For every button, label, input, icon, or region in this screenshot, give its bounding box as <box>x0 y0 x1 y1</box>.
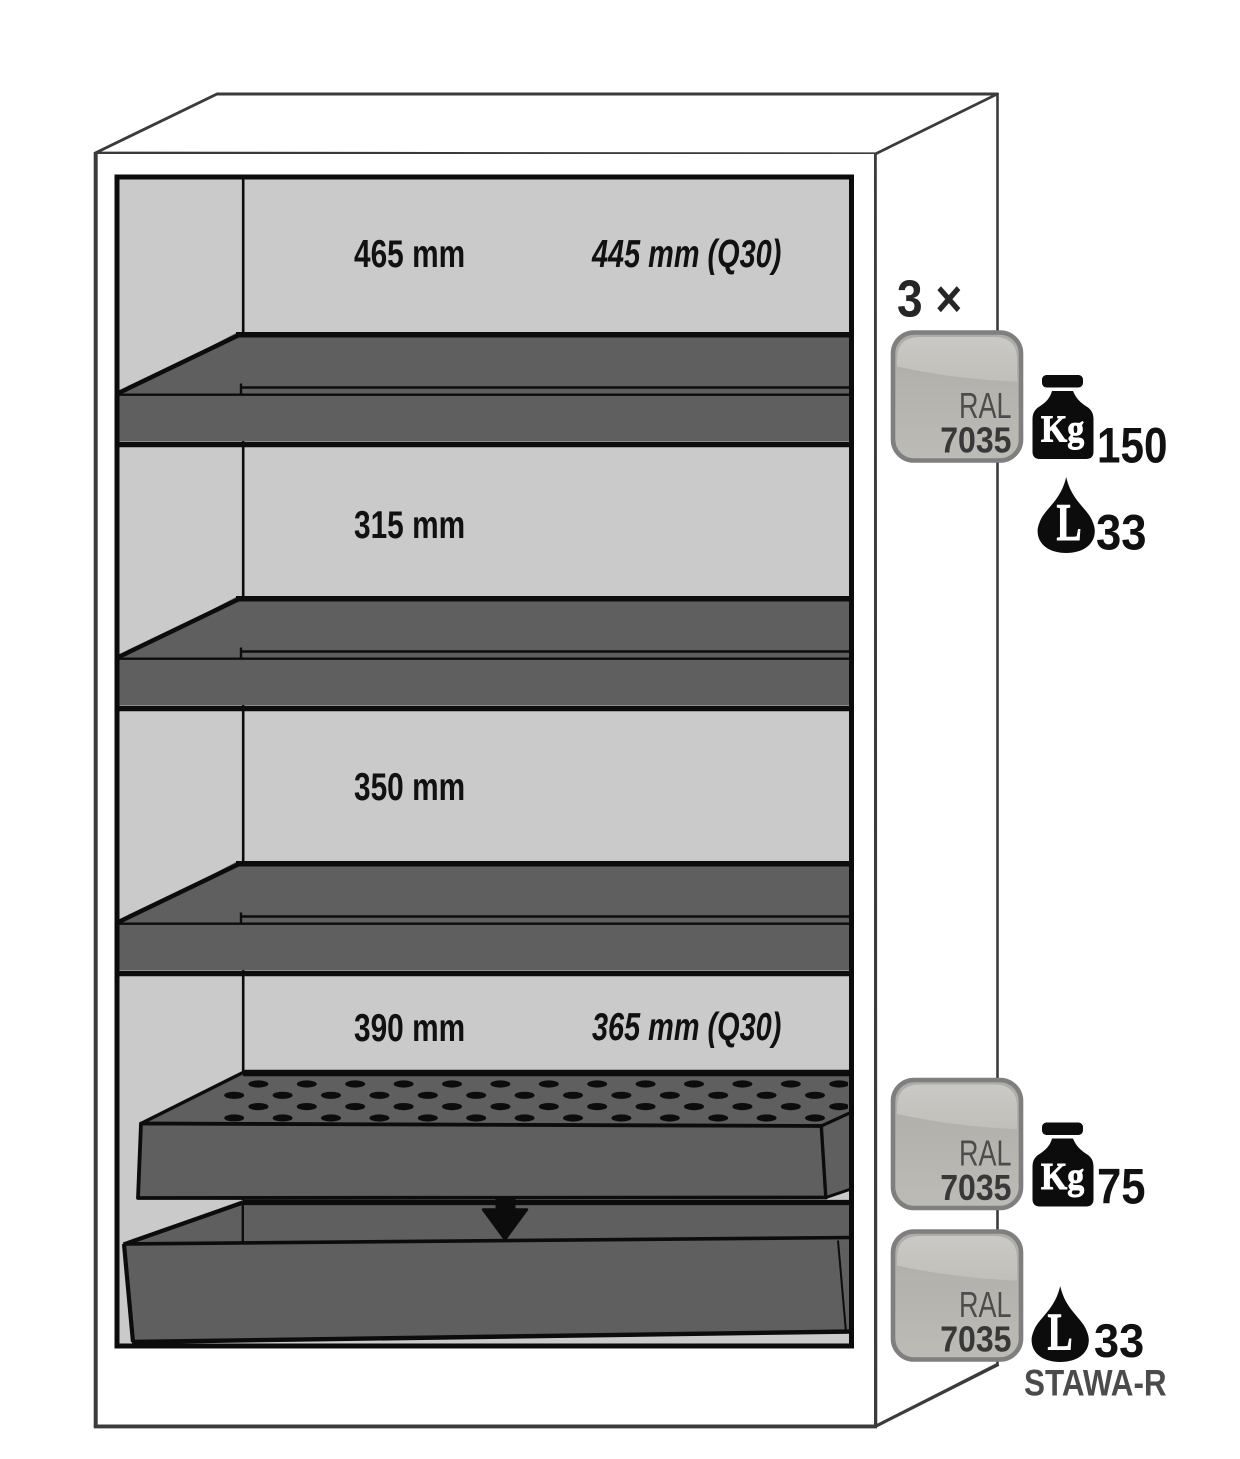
svg-text:L: L <box>1047 1302 1072 1361</box>
svg-text:445 mm (Q30): 445 mm (Q30) <box>591 233 781 276</box>
svg-text:350 mm: 350 mm <box>354 766 465 808</box>
svg-text:L: L <box>1056 493 1081 552</box>
svg-text:150: 150 <box>1097 417 1167 473</box>
svg-text:RAL: RAL <box>959 1284 1011 1325</box>
svg-text:7035: 7035 <box>940 421 1011 461</box>
svg-text:7035: 7035 <box>940 1168 1011 1208</box>
svg-text:390 mm: 390 mm <box>354 1007 465 1049</box>
svg-text:STAWA-R: STAWA-R <box>1024 1363 1167 1404</box>
svg-text:RAL: RAL <box>959 1133 1011 1174</box>
svg-text:Kg: Kg <box>1041 1155 1084 1197</box>
svg-text:RAL: RAL <box>959 385 1011 426</box>
svg-text:75: 75 <box>1097 1159 1146 1216</box>
svg-text:7035: 7035 <box>940 1320 1011 1360</box>
svg-text:33: 33 <box>1094 1314 1144 1367</box>
svg-text:365 mm (Q30): 365 mm (Q30) <box>592 1006 781 1049</box>
svg-text:Kg: Kg <box>1041 408 1084 450</box>
svg-text:315 mm: 315 mm <box>354 504 465 546</box>
svg-text:33: 33 <box>1096 505 1147 561</box>
svg-text:465 mm: 465 mm <box>354 233 465 275</box>
svg-text:3 ×: 3 × <box>897 271 962 328</box>
